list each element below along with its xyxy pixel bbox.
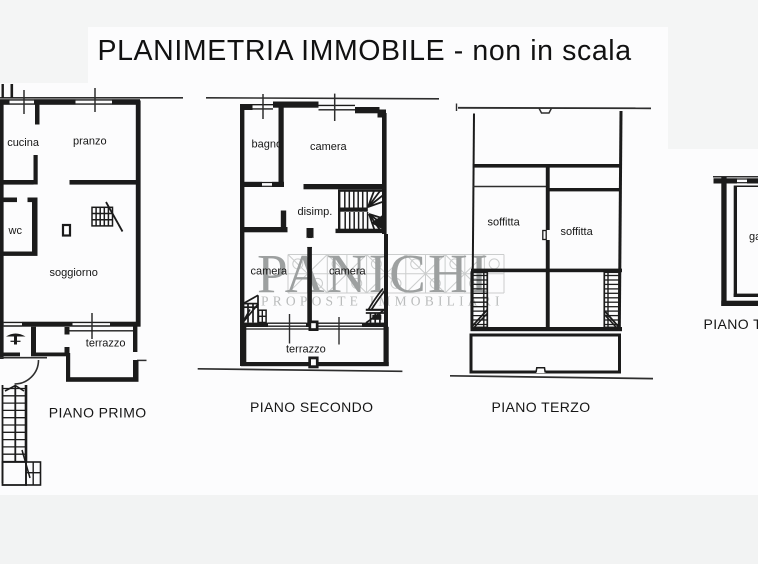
svg-text:PLANIMETRIA IMMOBILE - non in: PLANIMETRIA IMMOBILE - non in scala bbox=[98, 35, 632, 67]
svg-text:wc: wc bbox=[8, 225, 23, 237]
svg-text:PIANO TERZO: PIANO TERZO bbox=[492, 399, 591, 415]
svg-text:disimp.: disimp. bbox=[298, 206, 333, 218]
svg-text:camera: camera bbox=[310, 141, 348, 153]
svg-text:terrazzo: terrazzo bbox=[86, 338, 126, 350]
svg-text:garage: garage bbox=[749, 231, 758, 243]
svg-text:soggiorno: soggiorno bbox=[50, 267, 98, 279]
svg-text:PROPOSTE IMMOBILIARI: PROPOSTE IMMOBILIARI bbox=[261, 294, 504, 309]
svg-text:cucina: cucina bbox=[7, 137, 40, 149]
svg-text:PIANO TERRA: PIANO TERRA bbox=[704, 316, 758, 332]
svg-text:PIANO SECONDO: PIANO SECONDO bbox=[250, 399, 373, 415]
svg-text:pranzo: pranzo bbox=[73, 136, 107, 148]
svg-text:camera: camera bbox=[251, 266, 289, 278]
svg-text:soffitta: soffitta bbox=[488, 217, 521, 229]
svg-text:bagno: bagno bbox=[252, 139, 283, 151]
svg-text:soffitta: soffitta bbox=[561, 226, 594, 238]
svg-text:PIANO PRIMO: PIANO PRIMO bbox=[49, 405, 147, 421]
svg-text:camera: camera bbox=[329, 266, 367, 278]
svg-text:terrazzo: terrazzo bbox=[286, 344, 326, 356]
